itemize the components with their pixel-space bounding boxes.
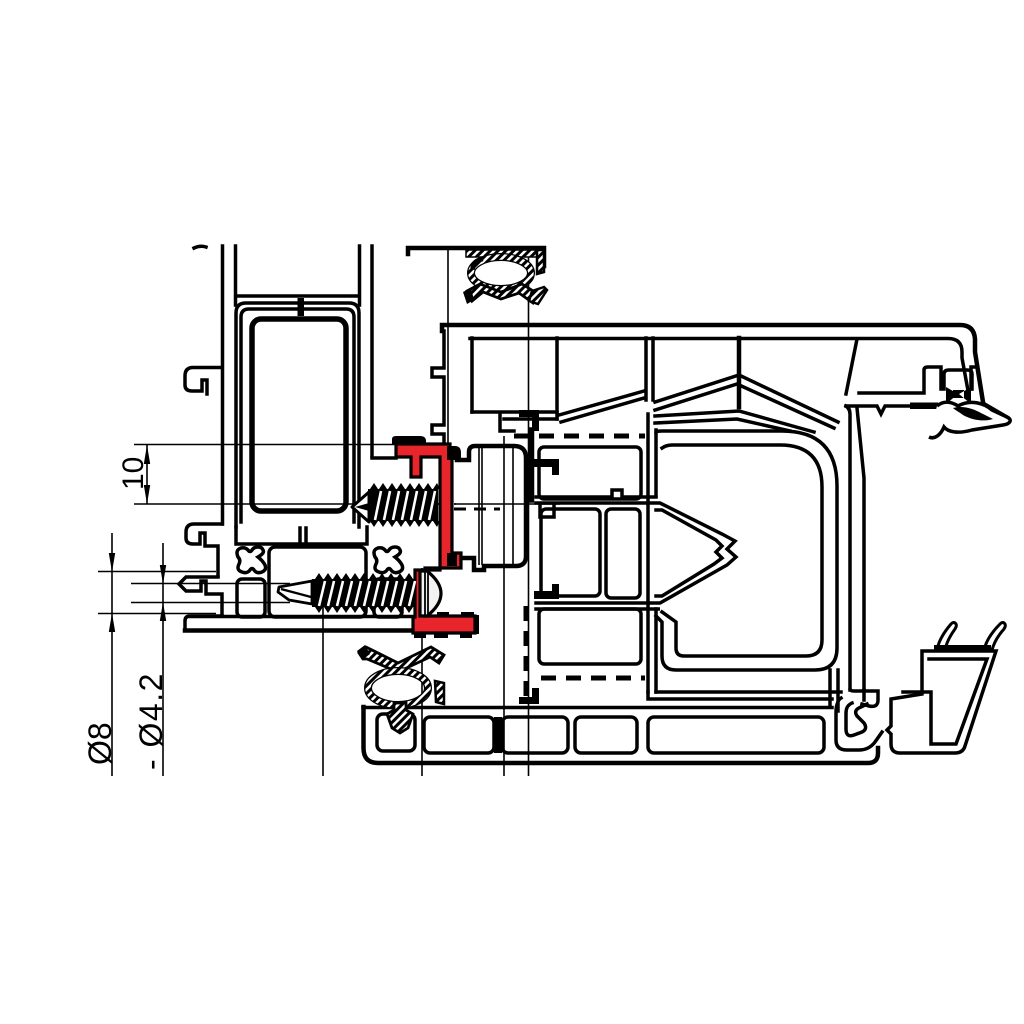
- svg-text:- Ø4.2: - Ø4.2: [133, 672, 169, 770]
- svg-text:Ø8: Ø8: [82, 722, 118, 765]
- svg-text:10: 10: [117, 457, 150, 490]
